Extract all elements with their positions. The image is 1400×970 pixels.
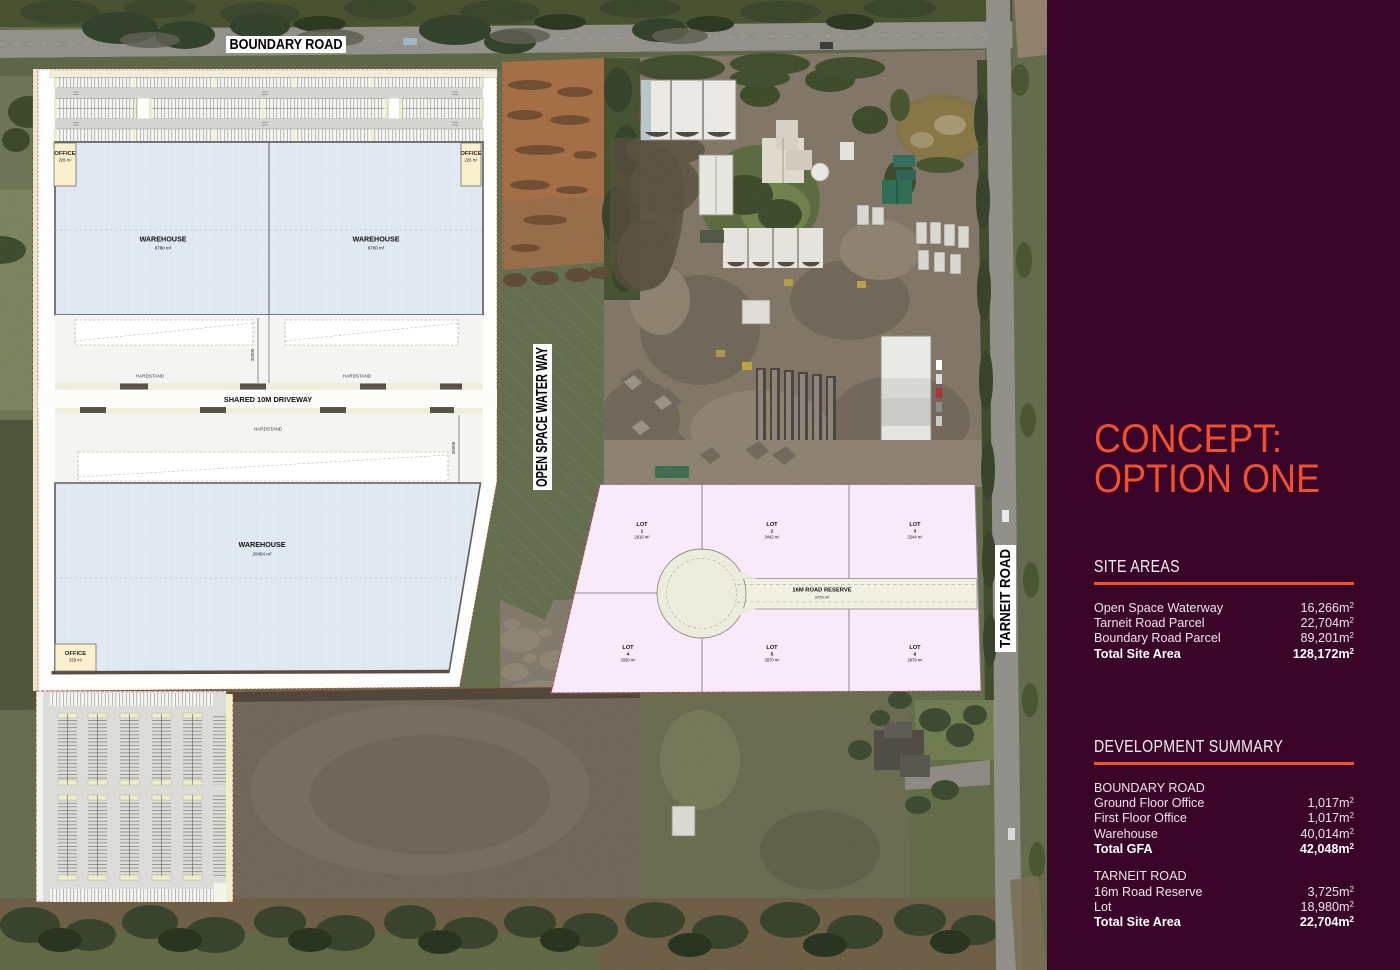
svg-text:2916 m²: 2916 m² [634,535,650,540]
svg-text:226 m²: 226 m² [58,158,72,163]
svg-text:OFFICE: OFFICE [460,151,481,157]
svg-text:OFFICE: OFFICE [54,151,75,157]
svg-text:SHARED 10M DRIVEWAY: SHARED 10M DRIVEWAY [224,395,313,404]
svg-text:TARNEIT ROAD: TARNEIT ROAD [997,549,1014,648]
svg-text:HARDSTAND: HARDSTAND [343,374,372,379]
svg-text:WAREHOUSE: WAREHOUSE [238,540,285,549]
svg-text:LOT: LOT [766,522,778,528]
svg-text:LOT: LOT [909,522,921,528]
svg-text:339 m²: 339 m² [69,658,83,663]
svg-text:226 m²: 226 m² [464,158,478,163]
svg-text:3725 m²: 3725 m² [815,595,830,600]
svg-text:20454 m²: 20454 m² [252,552,272,557]
svg-text:OFFICE: OFFICE [65,651,86,657]
svg-text:LOT: LOT [636,522,648,528]
svg-text:WAREHOUSE: WAREHOUSE [352,235,399,244]
svg-text:3244 m²: 3244 m² [907,535,923,540]
svg-text:3330 m²: 3330 m² [620,658,636,663]
svg-text:HARDSTAND: HARDSTAND [136,374,165,379]
svg-text:9780 m²: 9780 m² [155,246,172,251]
svg-text:LOT: LOT [622,645,634,651]
svg-text:36000: 36000 [250,348,255,361]
svg-text:HARDSTAND: HARDSTAND [254,427,283,432]
svg-text:9780 m²: 9780 m² [368,246,385,251]
svg-text:36000: 36000 [451,441,456,454]
svg-text:3442 m²: 3442 m² [764,535,780,540]
svg-text:BOUNDARY ROAD: BOUNDARY ROAD [230,37,343,53]
svg-text:2979 m²: 2979 m² [907,658,923,663]
svg-text:3070 m²: 3070 m² [764,658,780,663]
svg-text:LOT: LOT [909,645,921,651]
svg-text:WAREHOUSE: WAREHOUSE [139,235,186,244]
svg-text:LOT: LOT [766,645,778,651]
svg-text:16M ROAD RESERVE: 16M ROAD RESERVE [792,588,851,594]
svg-text:OPEN SPACE WATER WAY: OPEN SPACE WATER WAY [534,347,551,487]
